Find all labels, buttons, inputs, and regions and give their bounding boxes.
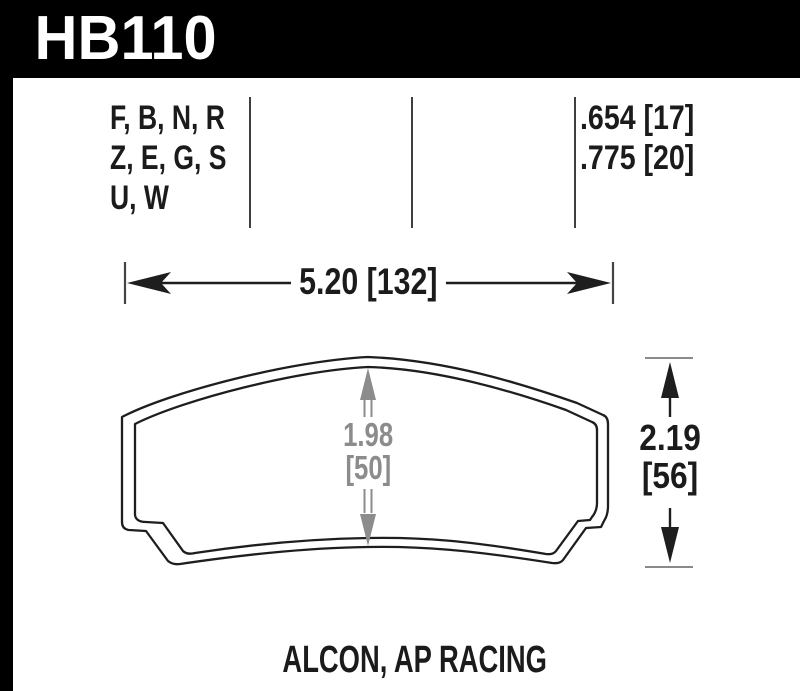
width-dimension-label: 5.20 [132] <box>218 261 518 303</box>
inner-height-label-mm: [50] <box>218 451 518 485</box>
pad-thickness-line-1: .654 [17] <box>580 98 694 138</box>
overall-height-label-in: 2.19 <box>610 419 730 457</box>
pad-thickness-line-2: .775 [20] <box>580 138 694 178</box>
shape-codes-line-3: U, W <box>110 178 226 218</box>
pad-thickness: .654 [17] .775 [20] <box>580 98 716 178</box>
applications-label: ALCON, AP RACING <box>265 640 565 680</box>
inner-height-label-in: 1.98 <box>218 418 518 452</box>
column-dividers <box>250 97 575 228</box>
shape-codes-line-1: F, B, N, R <box>110 98 226 138</box>
shape-codes-line-2: Z, E, G, S <box>110 138 226 178</box>
shape-codes: F, B, N, R Z, E, G, S U, W <box>110 98 259 218</box>
overall-height-label-mm: [56] <box>610 457 730 495</box>
down-arrowhead-icon <box>661 527 679 563</box>
up-arrowhead-icon <box>661 362 679 398</box>
